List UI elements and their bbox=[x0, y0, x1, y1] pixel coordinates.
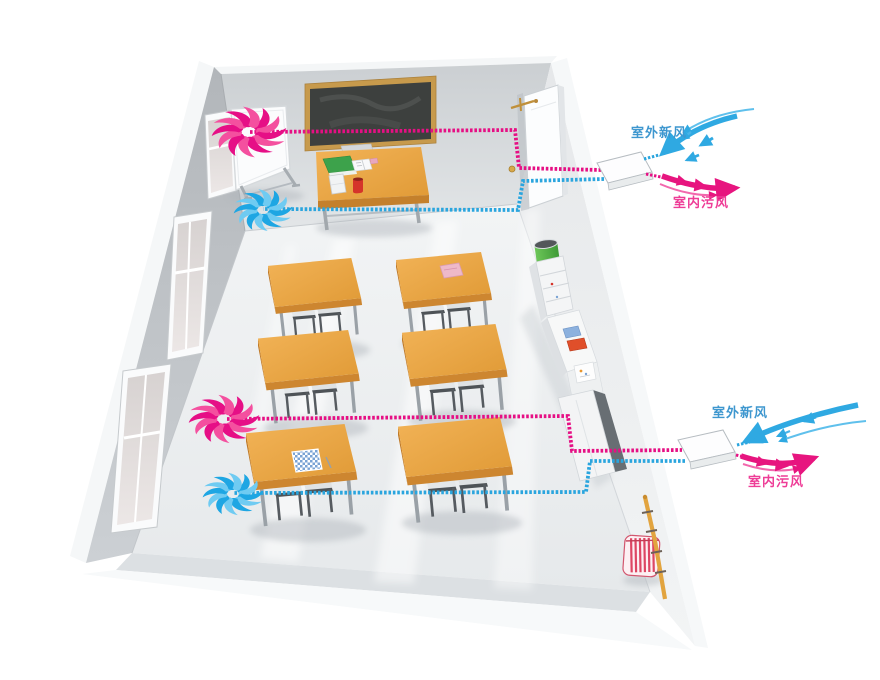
classroom-ventilation-illustration: 室外新风 室内污风 室外新风 室内污风 bbox=[0, 0, 880, 680]
paper-sheet bbox=[574, 362, 596, 383]
card-stand bbox=[329, 174, 346, 194]
pink-notebook bbox=[440, 263, 463, 278]
eraser bbox=[370, 158, 378, 164]
exhaust-air-arrows bbox=[741, 456, 814, 470]
open-notebook bbox=[352, 159, 372, 171]
scene-canvas bbox=[0, 0, 880, 680]
exhaust-air-label-bottom: 室内污风 bbox=[748, 471, 804, 490]
fresh-air-label-top: 室外新风 bbox=[631, 122, 687, 141]
fresh-air-label-bottom: 室外新风 bbox=[712, 402, 768, 421]
blackboard bbox=[305, 76, 436, 151]
door-knob bbox=[509, 166, 515, 172]
heat-recovery-unit bbox=[597, 152, 661, 190]
pencil-cup bbox=[353, 178, 363, 194]
exhaust-air-label-top: 室内污风 bbox=[673, 192, 729, 211]
heat-recovery-unit bbox=[678, 430, 750, 469]
